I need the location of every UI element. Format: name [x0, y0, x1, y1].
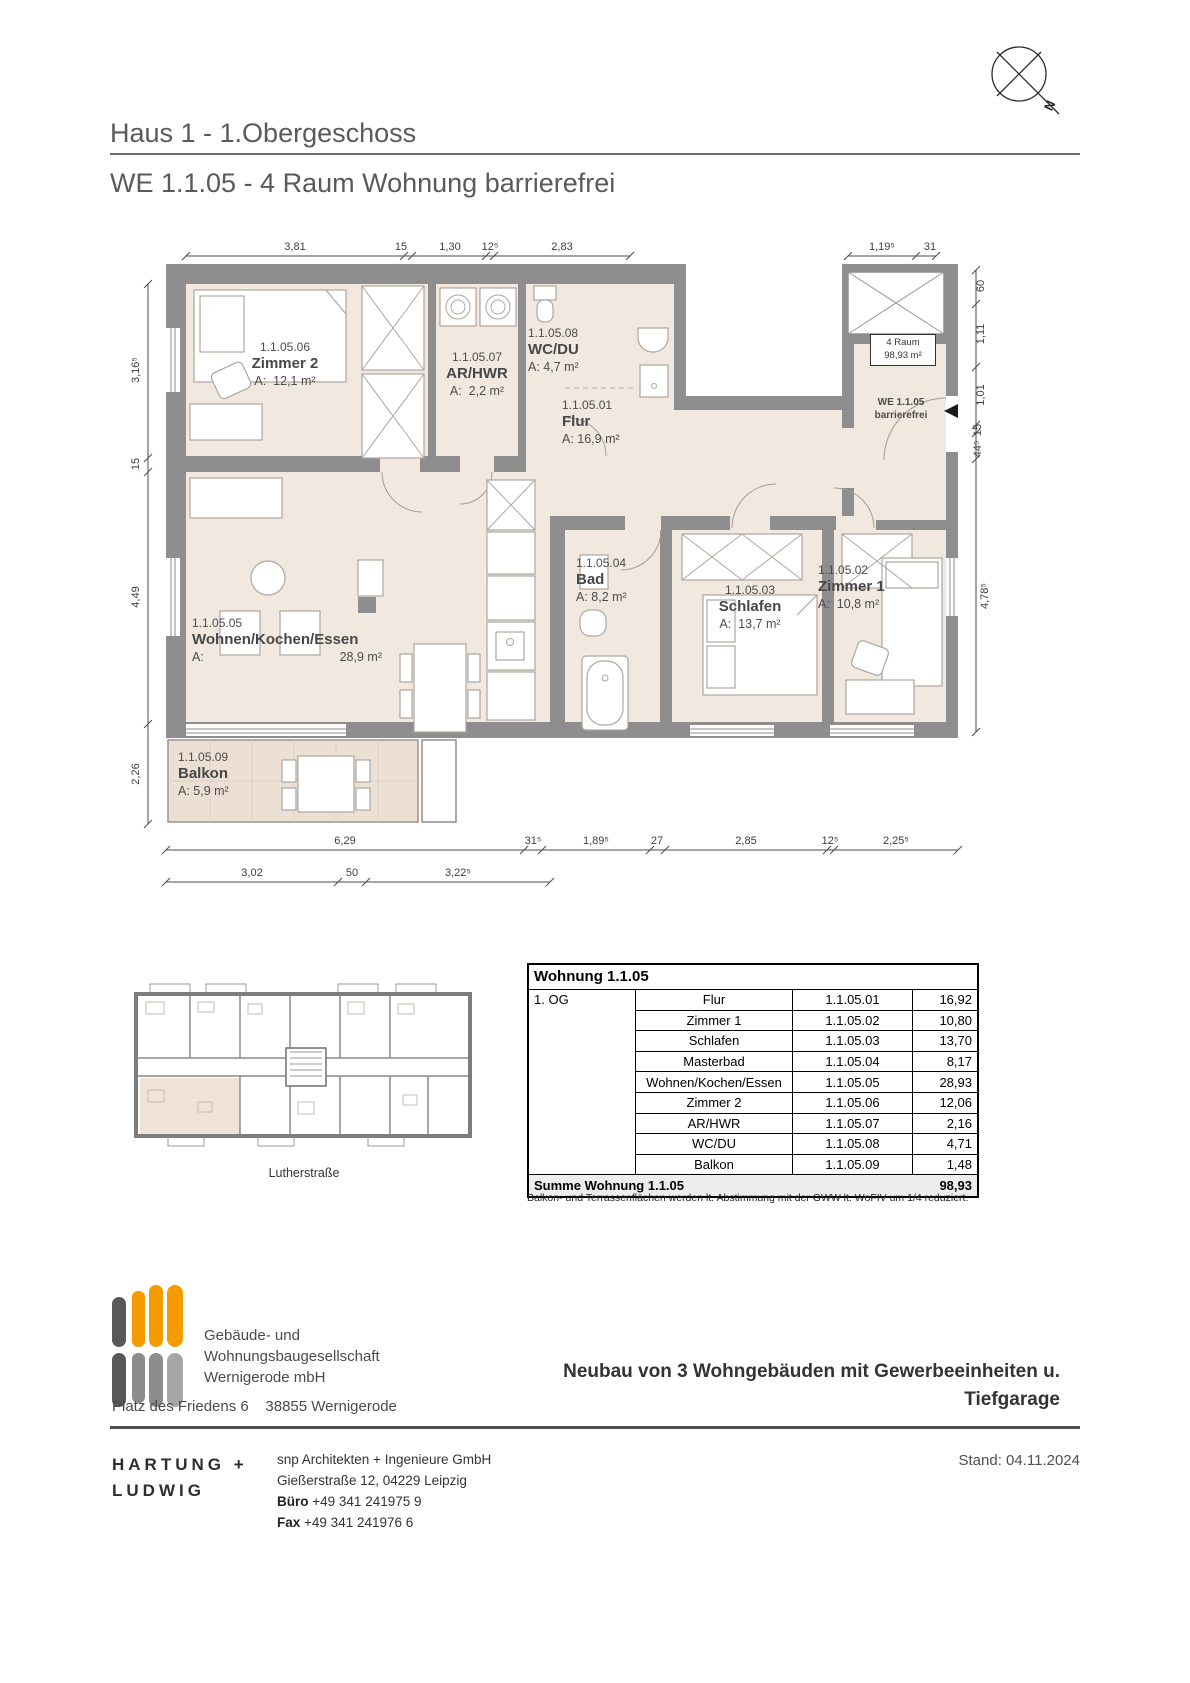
wardrobe-icon: [682, 534, 802, 580]
title-divider: [110, 153, 1080, 155]
room-label-zimmer2: 1.1.05.06 Zimmer 2 A: 12,1 m²: [210, 340, 360, 389]
washbasin-icon: [638, 328, 668, 352]
dimension-label: 27: [642, 835, 672, 847]
dimension-label: 50: [337, 867, 367, 879]
company-name: Gebäude- und Wohnungsbaugesellschaft Wer…: [204, 1325, 380, 1388]
dimension-label: 31: [912, 241, 948, 253]
dimension-label: 1,30: [430, 241, 470, 253]
revision-date: Stand: 04.11.2024: [780, 1452, 1080, 1469]
table-row: Zimmer 21.1.05.0612,06: [636, 1093, 977, 1114]
architect-contact: snp Architekten + Ingenieure GmbH Gießer…: [277, 1450, 491, 1534]
floor-cell: 1. OG: [529, 990, 636, 1174]
project-title: Neubau von 3 Wohngebäuden mit Gewerbeein…: [500, 1358, 1060, 1413]
bathtub-icon: [582, 656, 628, 730]
dimension-label: 2,85: [716, 835, 776, 847]
dimension-label: 2,26: [130, 752, 142, 796]
table-row: Wohnen/Kochen/Essen1.1.05.0528,93: [636, 1072, 977, 1093]
site-plan: [128, 982, 480, 1164]
dimension-label: 3,81: [265, 241, 325, 253]
desk-icon: [190, 404, 262, 440]
tv-icon: [358, 597, 376, 613]
tv-board-icon: [358, 560, 383, 596]
north-arrow-icon: N: [985, 40, 1075, 130]
dimension-label: 60: [975, 268, 987, 304]
room-label-flur: 1.1.05.01 Flur A: 16,9 m²: [562, 398, 682, 447]
unit-title: WE 1.1.05 - 4 Raum Wohnung barrierefrei: [110, 168, 615, 199]
dimension-label: 12⁵: [813, 835, 847, 847]
dimension-label: 1,01: [975, 377, 987, 413]
company-address: Platz des Friedens 6 38855 Wernigerode: [112, 1398, 397, 1415]
floor-plan: 3,81 15 1,30 12⁵ 2,83 1,19⁵ 31 3,16⁵ 15 …: [130, 228, 1010, 908]
dimension-label: 3,02: [222, 867, 282, 879]
room-label-wc-du: 1.1.05.08 WC/DU A: 4,7 m²: [528, 326, 618, 375]
street-label: Lutherstraße: [130, 1166, 478, 1180]
room-label-zimmer1: 1.1.05.02 Zimmer 1 A: 10,8 m²: [818, 563, 938, 612]
room-label-balkon: 1.1.05.09 Balkon A: 5,9 m²: [178, 750, 288, 799]
room-label-bad: 1.1.05.04 Bad A: 8,2 m²: [576, 556, 676, 605]
table-row: Schlafen1.1.05.0313,70: [636, 1031, 977, 1052]
dimension-label: 2,25⁵: [866, 835, 926, 847]
coffee-table-icon: [251, 561, 285, 595]
entrance-label: WE 1.1.05 barrierefrei: [858, 396, 944, 422]
table-row: WC/DU1.1.05.084,71: [636, 1134, 977, 1155]
footer-divider: [110, 1426, 1080, 1429]
highlighted-unit: [140, 1078, 240, 1134]
toilet-icon: [534, 286, 556, 322]
room-label-schlafen: 1.1.05.03 Schlafen A: 13,7 m²: [680, 583, 820, 632]
dimension-label: 4,49: [130, 575, 142, 619]
dimension-label: 44⁵: [972, 434, 984, 464]
dimension-label: 3,16⁵: [130, 348, 142, 392]
dimension-label: 1,19⁵: [856, 241, 908, 253]
table-title: Wohnung 1.1.05: [529, 965, 977, 990]
elevator-shaft-icon: [848, 272, 944, 334]
kitchen-counter: [487, 480, 535, 720]
table-row: Masterbad1.1.05.048,17: [636, 1052, 977, 1073]
page-title: Haus 1 - 1.Obergeschoss: [110, 118, 416, 149]
desk-icon: [846, 680, 914, 714]
table-row: Flur1.1.05.0116,92: [636, 990, 977, 1011]
dimension-label: 3,22⁵: [428, 867, 488, 879]
dimension-label: 1,89⁵: [570, 835, 622, 847]
room-label-ar-hwr: 1.1.05.07 AR/HWR A: 2,2 m²: [432, 350, 522, 399]
dimension-label: 4,78⁵: [979, 574, 991, 618]
unit-summary-box: 4 Raum 98,93 m²: [870, 334, 936, 366]
table-row: AR/HWR1.1.05.072,16: [636, 1114, 977, 1135]
dimension-label: 31⁵: [513, 835, 553, 847]
architect-logo: HARTUNG + LUDWIG: [112, 1452, 248, 1503]
table-row: Balkon1.1.05.091,48: [636, 1155, 977, 1175]
table-footnote: Balkon- und Terrassenflächen werden lt. …: [527, 1192, 987, 1204]
drawing-sheet: Haus 1 - 1.Obergeschoss WE 1.1.05 - 4 Ra…: [0, 0, 1190, 1683]
dimension-label: 15: [130, 442, 142, 486]
gww-logo: [112, 1283, 197, 1409]
dimension-label: 1,11: [975, 316, 987, 352]
dimension-label: 15: [388, 241, 414, 253]
dimension-label: 12⁵: [473, 241, 507, 253]
dimension-label: 6,29: [315, 835, 375, 847]
shower-icon: [640, 365, 668, 397]
site-plan-graphic: [128, 982, 480, 1164]
dimension-label: 2,83: [532, 241, 592, 253]
wc-icon: [580, 610, 606, 636]
area-table: Wohnung 1.1.05 1. OG Flur1.1.05.0116,92 …: [527, 963, 979, 1198]
table-row: Zimmer 11.1.05.0210,80: [636, 1011, 977, 1032]
room-label-wohnen: 1.1.05.05 Wohnen/Kochen/Essen A: 28,9 m²: [192, 616, 432, 665]
stair-core: [286, 1048, 326, 1086]
